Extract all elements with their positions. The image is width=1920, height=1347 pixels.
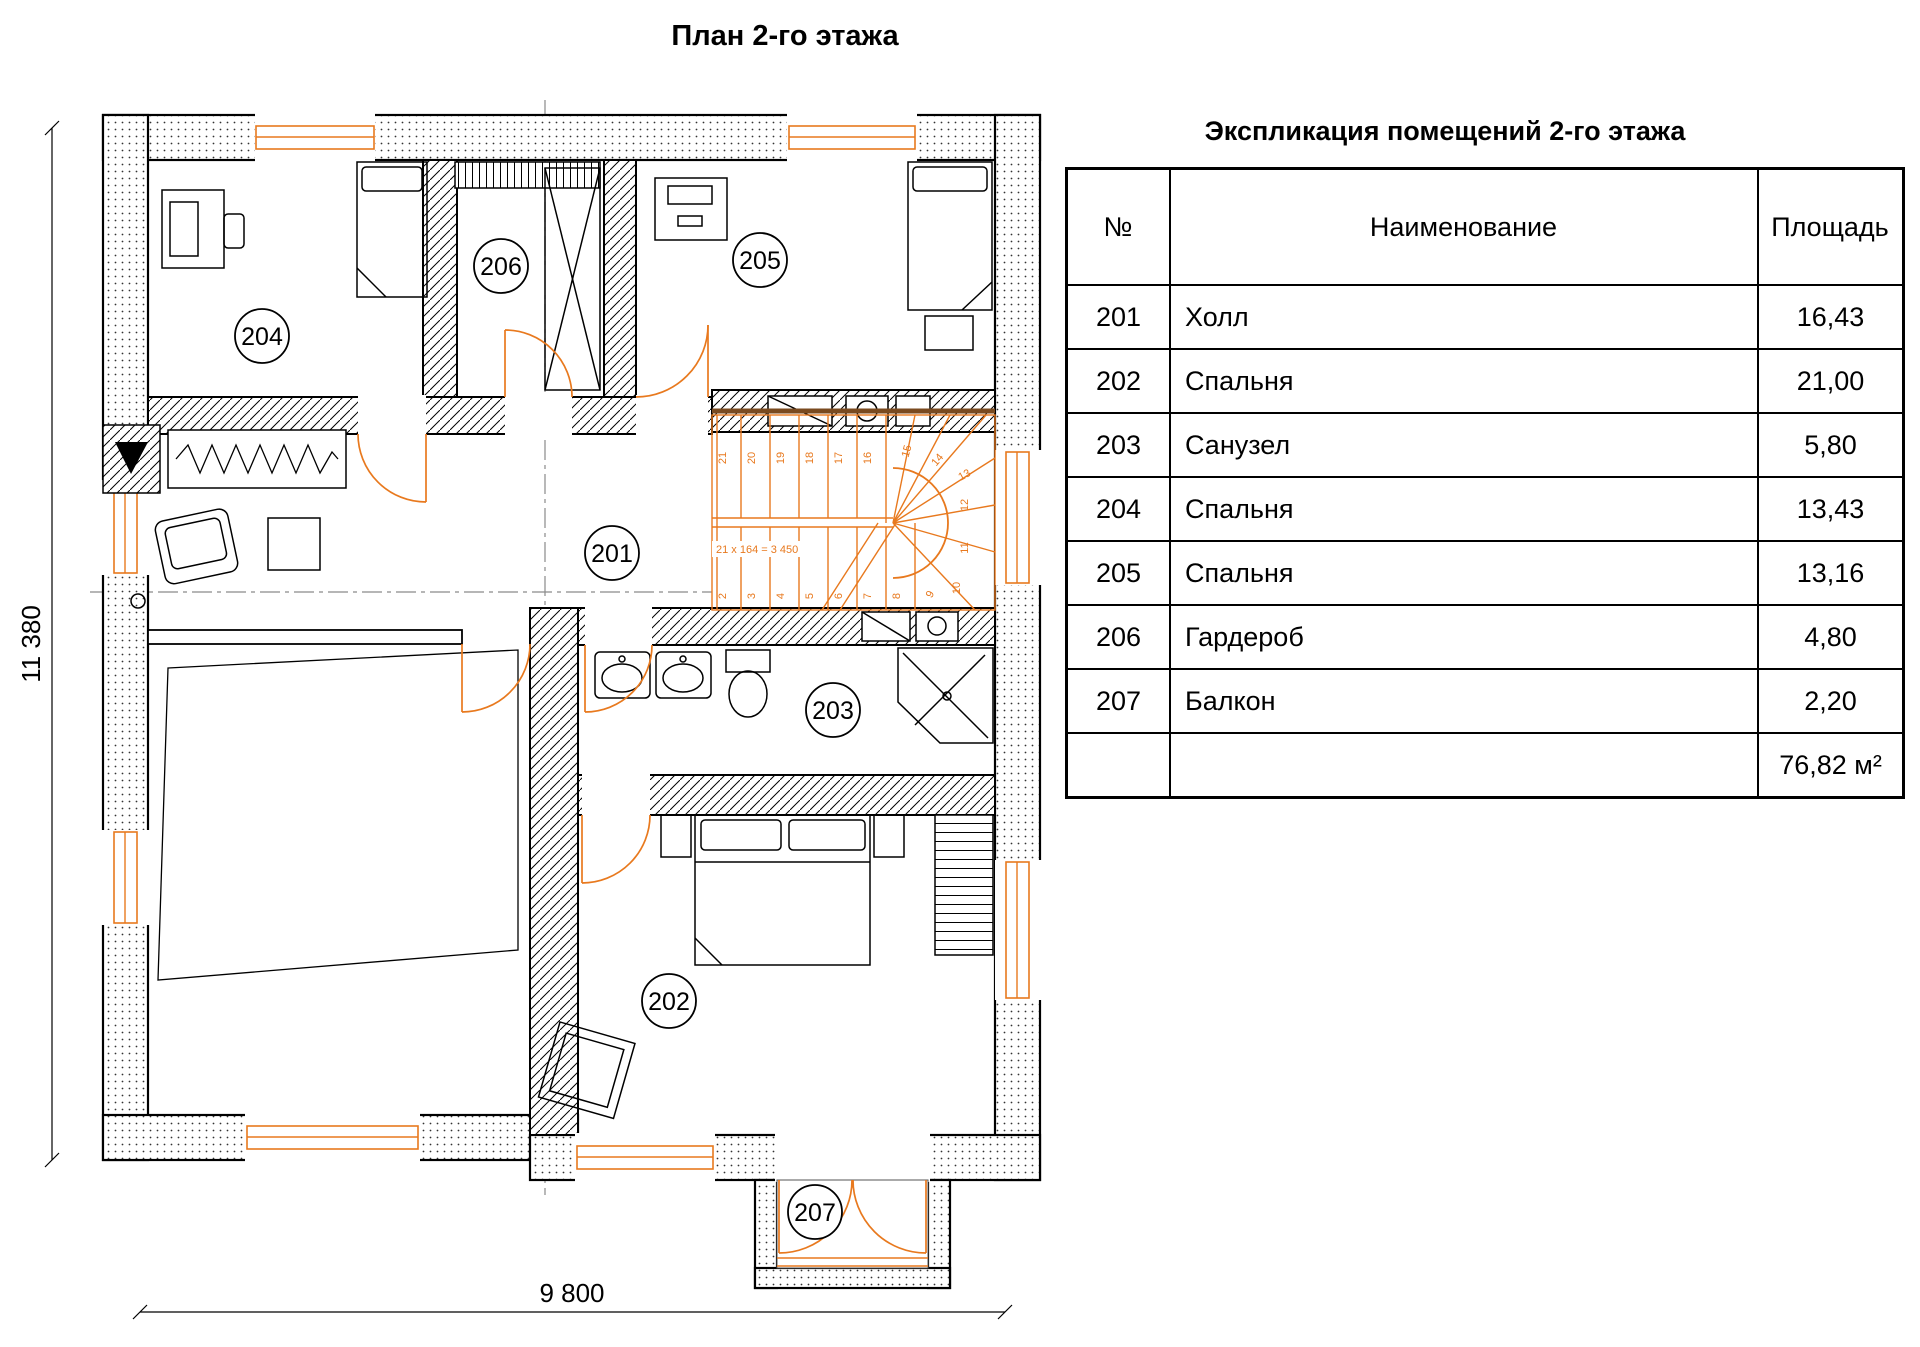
header-area: Площадь bbox=[1758, 169, 1904, 286]
svg-text:20: 20 bbox=[746, 452, 758, 464]
svg-text:2: 2 bbox=[717, 593, 729, 599]
desk-icon bbox=[655, 178, 727, 240]
clothes-rail-icon bbox=[168, 430, 346, 488]
svg-text:12: 12 bbox=[959, 499, 971, 511]
cell-area: 13,43 bbox=[1758, 477, 1904, 541]
svg-text:17: 17 bbox=[833, 452, 845, 464]
window-symbol bbox=[995, 450, 1042, 585]
desk-icon bbox=[162, 190, 244, 268]
svg-text:21: 21 bbox=[717, 452, 729, 464]
room-number: 207 bbox=[788, 1185, 842, 1239]
cell-area: 16,43 bbox=[1758, 285, 1904, 349]
cell-no: 202 bbox=[1067, 349, 1171, 413]
room-number: 203 bbox=[806, 683, 860, 737]
room-schedule-table: № Наименование Площадь 201 Холл 16,43 20… bbox=[1065, 167, 1905, 799]
svg-text:203: 203 bbox=[812, 697, 854, 725]
svg-text:202: 202 bbox=[648, 988, 690, 1016]
svg-text:5: 5 bbox=[804, 593, 816, 599]
svg-text:206: 206 bbox=[480, 253, 522, 281]
cell-total-area: 76,82 м² bbox=[1758, 733, 1904, 798]
room-number: 202 bbox=[642, 974, 696, 1028]
cell-no: 204 bbox=[1067, 477, 1171, 541]
shelf-icon bbox=[455, 162, 600, 188]
ladder-icon bbox=[545, 168, 600, 390]
window-symbol bbox=[255, 113, 375, 162]
svg-text:10: 10 bbox=[951, 582, 963, 594]
nightstand-icon bbox=[661, 815, 691, 857]
window-symbol bbox=[101, 830, 150, 925]
svg-text:207: 207 bbox=[794, 1199, 836, 1227]
staircase bbox=[712, 411, 995, 610]
room-number: 205 bbox=[733, 233, 787, 287]
sink-icon bbox=[595, 652, 650, 698]
dimension-left: 11 380 bbox=[16, 121, 59, 1167]
window-symbol bbox=[787, 113, 917, 162]
toilet-icon bbox=[726, 650, 770, 717]
table-row: 204 Спальня 13,43 bbox=[1067, 477, 1904, 541]
armchair-icon bbox=[154, 507, 240, 585]
svg-text:15: 15 bbox=[900, 444, 915, 459]
cell-name: Спальня bbox=[1170, 541, 1758, 605]
cell-name: Холл bbox=[1170, 285, 1758, 349]
cell-no: 206 bbox=[1067, 605, 1171, 669]
stair-step-numbers: 21 20 19 18 17 16 15 14 13 12 11 10 9 2 … bbox=[717, 444, 973, 600]
cell-no-empty bbox=[1067, 733, 1171, 798]
svg-text:3: 3 bbox=[746, 593, 758, 599]
svg-text:205: 205 bbox=[739, 247, 781, 275]
table-icon bbox=[268, 518, 320, 570]
cell-name-empty bbox=[1170, 733, 1758, 798]
wardrobe-icon bbox=[935, 815, 993, 955]
window-symbol bbox=[101, 480, 150, 575]
svg-text:16: 16 bbox=[862, 452, 874, 464]
cell-area: 13,16 bbox=[1758, 541, 1904, 605]
cell-name: Гардероб bbox=[1170, 605, 1758, 669]
bed-icon bbox=[357, 162, 427, 297]
table-row: 207 Балкон 2,20 bbox=[1067, 669, 1904, 733]
header-no: № bbox=[1067, 169, 1171, 286]
door-symbol bbox=[582, 815, 650, 883]
table-total-row: 76,82 м² bbox=[1067, 733, 1904, 798]
double-bed-icon bbox=[695, 815, 870, 965]
door-symbol bbox=[462, 644, 530, 712]
svg-text:6: 6 bbox=[833, 593, 845, 599]
svg-text:14: 14 bbox=[929, 452, 946, 469]
window-symbol bbox=[245, 1113, 420, 1162]
table-row: 201 Холл 16,43 bbox=[1067, 285, 1904, 349]
cell-no: 201 bbox=[1067, 285, 1171, 349]
inner-walls bbox=[148, 160, 995, 1135]
svg-text:18: 18 bbox=[804, 452, 816, 464]
svg-text:8: 8 bbox=[891, 593, 903, 599]
drawing-sheet: План 2-го этажа Экспликация помещений 2-… bbox=[0, 0, 1920, 1347]
table-row: 203 Санузел 5,80 bbox=[1067, 413, 1904, 477]
fireplace-icon bbox=[103, 425, 160, 493]
cell-no: 203 bbox=[1067, 413, 1171, 477]
cell-name: Спальня bbox=[1170, 349, 1758, 413]
svg-text:9 800: 9 800 bbox=[539, 1278, 604, 1308]
sink-icon bbox=[656, 652, 711, 698]
svg-text:4: 4 bbox=[775, 593, 787, 599]
svg-text:19: 19 bbox=[775, 452, 787, 464]
window-symbol bbox=[995, 860, 1042, 1000]
table-row: 202 Спальня 21,00 bbox=[1067, 349, 1904, 413]
cell-area: 4,80 bbox=[1758, 605, 1904, 669]
partition-wall bbox=[148, 630, 462, 644]
cell-area: 21,00 bbox=[1758, 349, 1904, 413]
window-symbol bbox=[575, 1133, 715, 1182]
svg-text:11 380: 11 380 bbox=[16, 605, 46, 683]
stair-formula: 21 x 164 = 3 450 bbox=[716, 544, 798, 556]
nightstand-icon bbox=[925, 316, 973, 350]
svg-text:201: 201 bbox=[591, 540, 633, 568]
bed-icon bbox=[908, 162, 992, 310]
table-header-row: № Наименование Площадь bbox=[1067, 169, 1904, 286]
door-symbol bbox=[636, 325, 708, 397]
roof-outline bbox=[158, 650, 518, 980]
cell-name: Спальня bbox=[1170, 477, 1758, 541]
cell-area: 5,80 bbox=[1758, 413, 1904, 477]
room-number: 204 bbox=[235, 309, 289, 363]
cell-area: 2,20 bbox=[1758, 669, 1904, 733]
table-row: 205 Спальня 13,16 bbox=[1067, 541, 1904, 605]
cell-name: Санузел bbox=[1170, 413, 1758, 477]
cell-no: 205 bbox=[1067, 541, 1171, 605]
cell-name: Балкон bbox=[1170, 669, 1758, 733]
svg-text:7: 7 bbox=[862, 593, 874, 599]
header-name: Наименование bbox=[1170, 169, 1758, 286]
washer-icon bbox=[862, 612, 910, 641]
svg-text:9: 9 bbox=[924, 589, 937, 600]
boiler-icon bbox=[916, 612, 958, 641]
svg-text:204: 204 bbox=[241, 323, 283, 351]
table-row: 206 Гардероб 4,80 bbox=[1067, 605, 1904, 669]
shower-icon bbox=[898, 648, 993, 743]
door-symbol bbox=[358, 434, 426, 502]
cell-no: 207 bbox=[1067, 669, 1171, 733]
room-number: 206 bbox=[474, 239, 528, 293]
nightstand-icon bbox=[874, 815, 904, 857]
room-number: 201 bbox=[585, 526, 639, 580]
svg-text:11: 11 bbox=[959, 542, 971, 553]
door-symbol bbox=[505, 330, 572, 397]
